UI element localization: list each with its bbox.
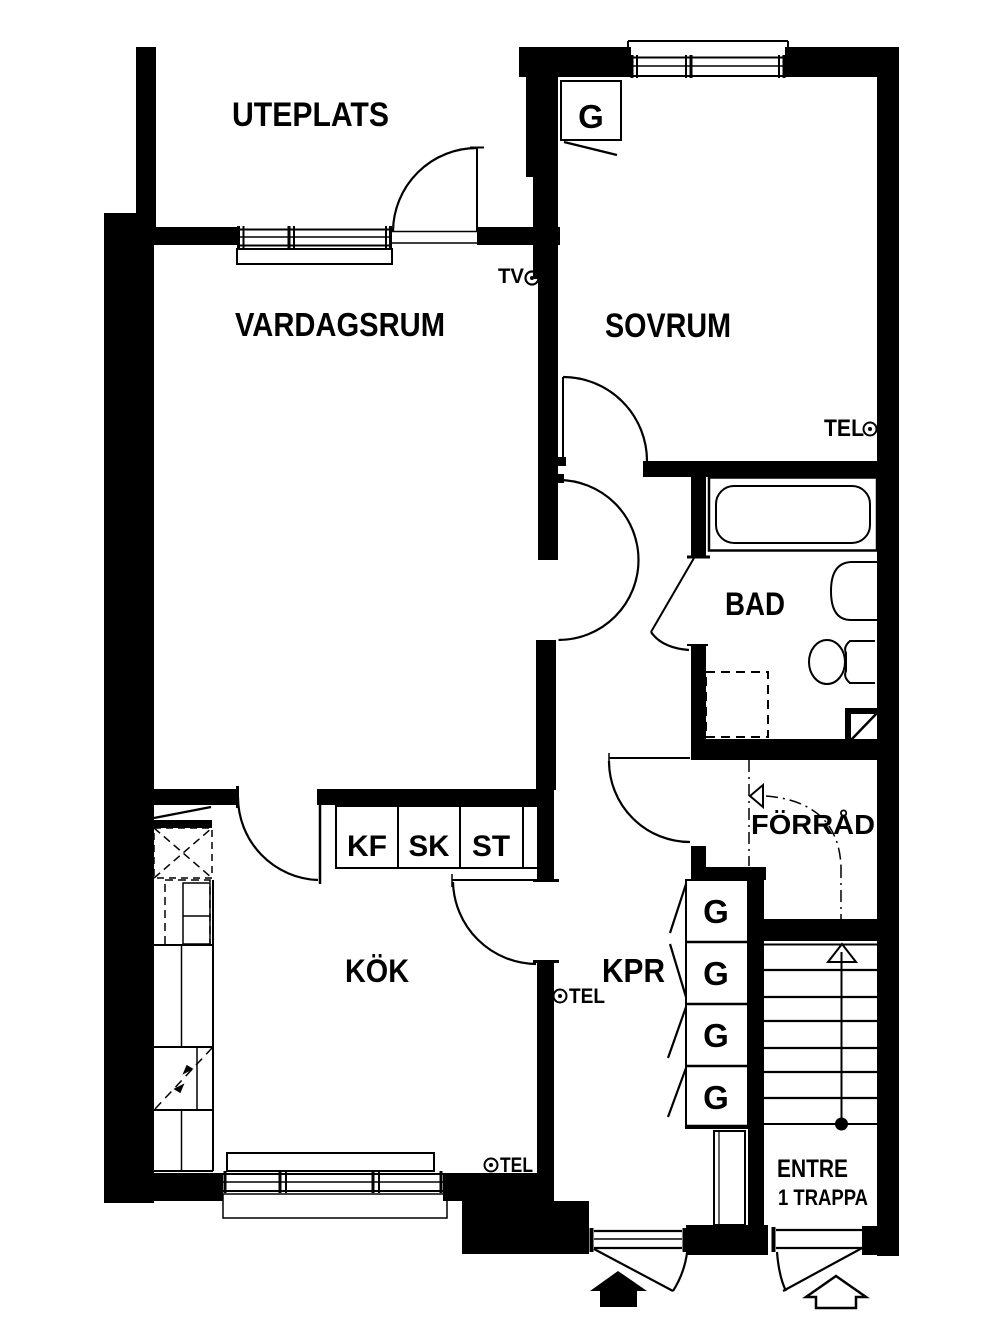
svg-text:ENTRE: ENTRE: [777, 1155, 848, 1183]
svg-text:TEL: TEL: [824, 415, 864, 442]
svg-text:KPR: KPR: [602, 952, 665, 989]
svg-text:UTEPLATS: UTEPLATS: [232, 96, 389, 134]
svg-text:SOVRUM: SOVRUM: [605, 307, 731, 345]
svg-text:SK: SK: [409, 830, 450, 863]
svg-text:1 TRAPPA: 1 TRAPPA: [778, 1185, 868, 1210]
svg-text:FÖRRÅD: FÖRRÅD: [751, 809, 875, 840]
svg-text:G: G: [703, 1079, 729, 1116]
svg-text:TEL: TEL: [569, 985, 605, 1008]
svg-text:BAD: BAD: [725, 586, 785, 622]
svg-text:G: G: [703, 955, 729, 992]
svg-text:TV: TV: [498, 265, 524, 288]
svg-text:KÖK: KÖK: [345, 953, 409, 989]
svg-text:G: G: [703, 893, 729, 930]
svg-text:KF: KF: [347, 830, 387, 863]
svg-text:TEL: TEL: [500, 1154, 533, 1177]
svg-text:G: G: [578, 98, 604, 135]
svg-text:VARDAGSRUM: VARDAGSRUM: [235, 306, 445, 343]
svg-text:ST: ST: [472, 830, 510, 863]
svg-text:G: G: [703, 1017, 729, 1054]
